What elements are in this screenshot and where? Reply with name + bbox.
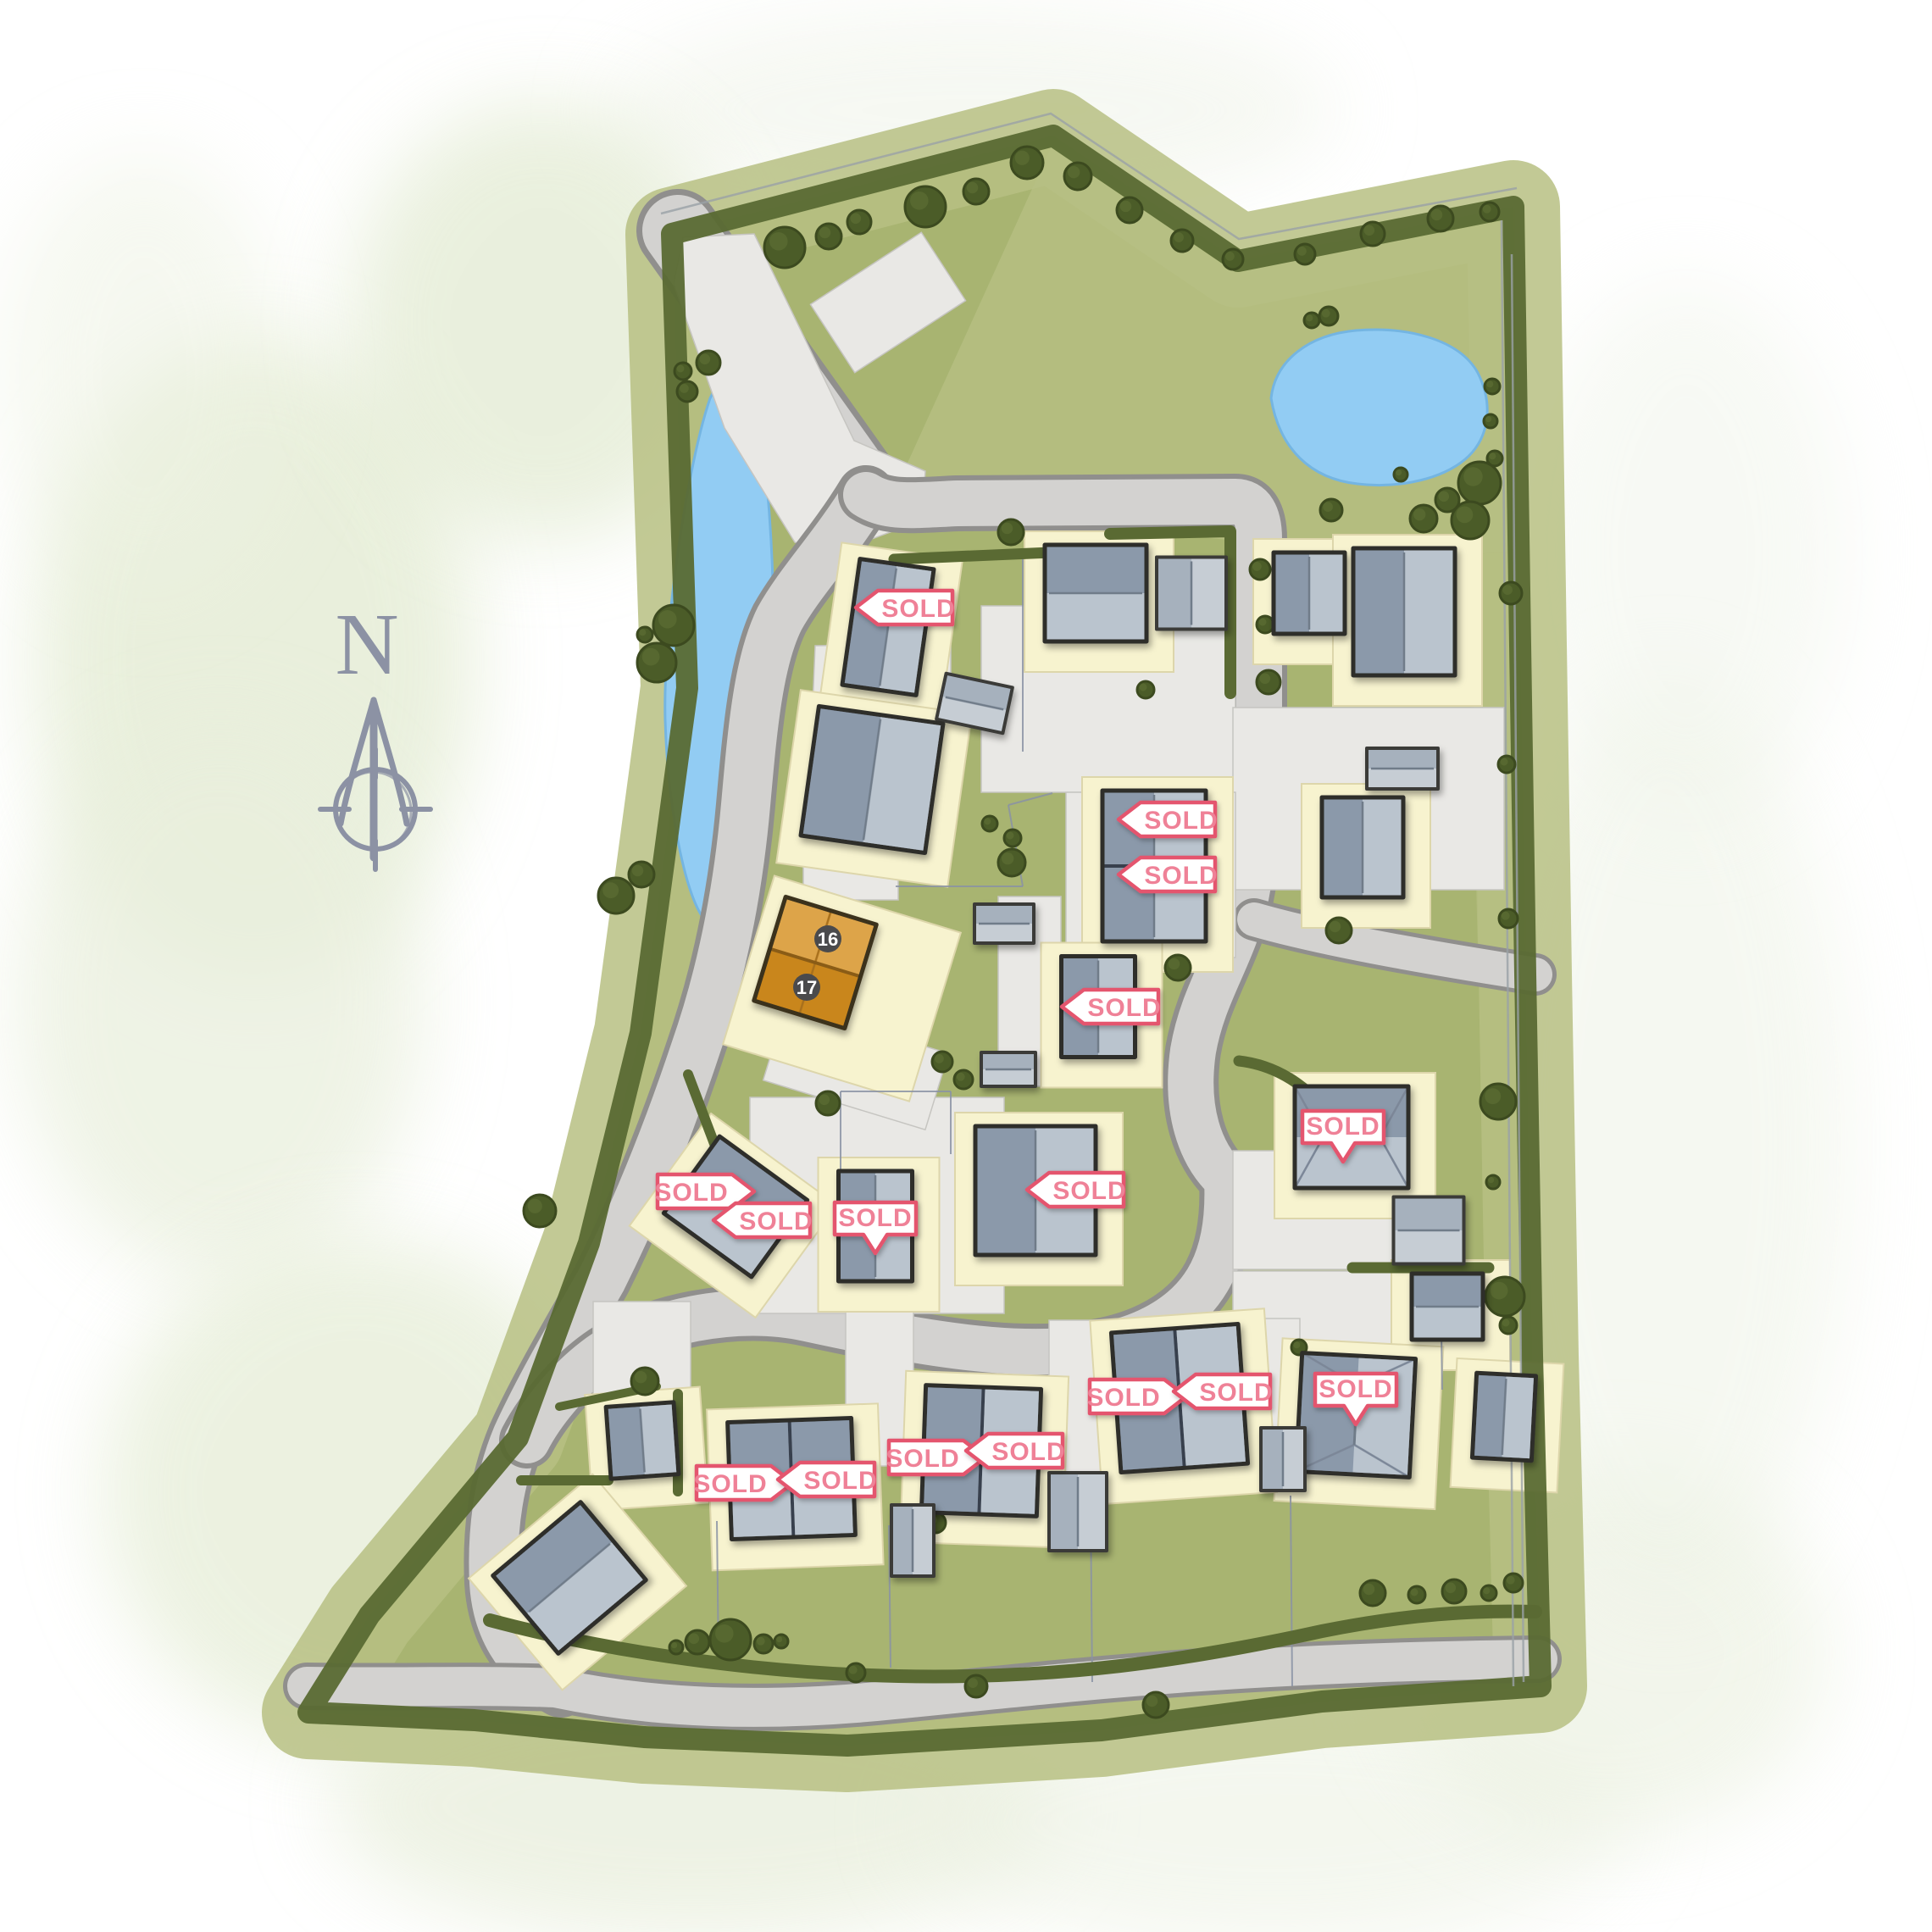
compass-north-label: N xyxy=(335,596,398,693)
tree-icon xyxy=(1485,1277,1524,1316)
tree-icon xyxy=(1499,909,1518,928)
tree-icon xyxy=(629,862,654,887)
svg-text:SOLD: SOLD xyxy=(881,595,955,623)
tree-icon xyxy=(1004,830,1021,847)
tree-icon xyxy=(1485,379,1500,394)
plot-number-badge[interactable]: 17 xyxy=(793,974,820,1001)
tree-icon xyxy=(1117,197,1142,223)
house-roof[interactable] xyxy=(1472,1373,1535,1461)
sold-badge[interactable]: SOLD xyxy=(1119,802,1219,836)
tree-icon xyxy=(905,186,946,227)
tree-icon xyxy=(697,351,720,375)
tree-icon xyxy=(1257,670,1280,694)
svg-text:SOLD: SOLD xyxy=(739,1207,813,1235)
house-roof[interactable] xyxy=(842,559,934,696)
sold-badge[interactable]: SOLD xyxy=(713,1203,813,1237)
tree-icon xyxy=(1171,230,1193,252)
tree-icon xyxy=(1480,1084,1516,1119)
house-roof[interactable] xyxy=(801,706,943,852)
tree-icon xyxy=(998,519,1024,545)
pond-north-east xyxy=(1271,330,1487,485)
svg-text:SOLD: SOLD xyxy=(803,1467,877,1495)
tree-icon xyxy=(637,627,652,642)
tree-icon xyxy=(1458,462,1501,504)
svg-text:SOLD: SOLD xyxy=(991,1438,1065,1466)
sold-badge[interactable]: SOLD xyxy=(1027,1173,1127,1207)
tree-icon xyxy=(1428,206,1453,231)
svg-text:SOLD: SOLD xyxy=(1319,1375,1392,1403)
tree-icon xyxy=(1486,1175,1500,1189)
tree-icon xyxy=(1223,249,1243,269)
sold-badge[interactable]: SOLD xyxy=(1062,990,1162,1024)
garage-roof[interactable] xyxy=(1261,1428,1305,1491)
svg-text:SOLD: SOLD xyxy=(1144,807,1218,835)
tree-icon xyxy=(631,1368,658,1395)
tree-icon xyxy=(1500,582,1522,604)
garage-roof[interactable] xyxy=(1394,1197,1464,1264)
tree-icon xyxy=(1257,616,1274,633)
garage-roof[interactable] xyxy=(1157,558,1226,630)
house-roof[interactable] xyxy=(1045,545,1146,641)
tree-icon xyxy=(963,179,989,204)
tree-icon xyxy=(1480,203,1499,221)
tree-icon xyxy=(1504,1574,1523,1592)
tree-icon xyxy=(1064,163,1091,190)
tree-icon xyxy=(954,1070,973,1089)
tree-icon xyxy=(1410,505,1437,532)
svg-text:SOLD: SOLD xyxy=(838,1204,912,1232)
sold-badge[interactable]: SOLD xyxy=(856,591,956,625)
house-roof[interactable] xyxy=(1412,1274,1483,1340)
garage-roof[interactable] xyxy=(891,1505,934,1576)
site-plan-map: 1617SOLDSOLDSOLDSOLDSOLDSOLDSOLDSOLDSOLD… xyxy=(0,0,1932,1932)
sold-badge[interactable]: SOLD xyxy=(1174,1374,1274,1408)
house-roof[interactable] xyxy=(1353,548,1455,675)
tree-icon xyxy=(816,224,841,249)
tree-icon xyxy=(982,816,997,831)
tree-icon xyxy=(1319,307,1338,325)
tree-icon xyxy=(1165,955,1191,980)
svg-text:SOLD: SOLD xyxy=(1306,1113,1380,1141)
tree-icon xyxy=(1143,1692,1169,1718)
tree-icon xyxy=(1481,1585,1496,1601)
tree-icon xyxy=(1295,244,1315,264)
plot-number-badge[interactable]: 16 xyxy=(814,925,841,952)
tree-icon xyxy=(932,1052,952,1072)
sold-badge[interactable]: SOLD xyxy=(778,1463,878,1496)
tree-icon xyxy=(965,1675,987,1697)
tree-icon xyxy=(1250,559,1270,580)
tree-icon xyxy=(754,1635,773,1653)
svg-text:17: 17 xyxy=(797,977,817,998)
tree-icon xyxy=(998,849,1025,876)
svg-text:SOLD: SOLD xyxy=(1199,1379,1273,1407)
svg-text:SOLD: SOLD xyxy=(693,1470,767,1498)
tree-icon xyxy=(1304,313,1319,328)
garage-roof[interactable] xyxy=(981,1052,1035,1086)
svg-text:SOLD: SOLD xyxy=(885,1445,959,1473)
tree-icon xyxy=(710,1619,751,1660)
svg-text:SOLD: SOLD xyxy=(1144,862,1218,890)
svg-text:SOLD: SOLD xyxy=(1086,1384,1160,1412)
tree-icon xyxy=(677,381,697,402)
tree-icon xyxy=(1435,488,1459,512)
garage-roof[interactable] xyxy=(974,904,1034,943)
tree-icon xyxy=(1360,1580,1385,1606)
garage-roof[interactable] xyxy=(1049,1473,1107,1551)
tree-icon xyxy=(1498,756,1515,773)
tree-icon xyxy=(764,227,805,268)
tree-icon xyxy=(669,1641,683,1654)
house-roof[interactable] xyxy=(1322,797,1403,897)
svg-text:16: 16 xyxy=(818,929,838,950)
sold-badge[interactable]: SOLD xyxy=(693,1466,793,1500)
tree-icon xyxy=(1326,918,1352,943)
tree-icon xyxy=(1394,468,1407,481)
tree-icon xyxy=(816,1091,840,1115)
tree-icon xyxy=(686,1630,709,1654)
tree-icon xyxy=(1442,1579,1466,1603)
tree-icon xyxy=(774,1635,788,1648)
house-roof[interactable] xyxy=(1274,552,1345,634)
tree-icon xyxy=(1320,499,1342,521)
tree-icon xyxy=(524,1195,556,1227)
tree-icon xyxy=(675,363,691,380)
tree-icon xyxy=(1408,1586,1425,1603)
tree-icon xyxy=(1361,222,1385,246)
tree-icon xyxy=(847,1663,865,1682)
tree-icon xyxy=(847,210,871,234)
tree-icon xyxy=(1484,414,1497,428)
sold-badge[interactable]: SOLD xyxy=(1119,858,1219,891)
tree-icon xyxy=(598,878,634,913)
svg-text:SOLD: SOLD xyxy=(1087,994,1161,1022)
tree-icon xyxy=(637,643,676,682)
tree-icon xyxy=(1011,147,1043,179)
sold-badge[interactable]: SOLD xyxy=(966,1434,1066,1468)
sold-badge[interactable]: SOLD xyxy=(1086,1380,1186,1413)
tree-icon xyxy=(653,605,694,646)
garage-roof[interactable] xyxy=(1367,748,1438,789)
tree-icon xyxy=(1500,1317,1517,1334)
tree-icon xyxy=(1137,681,1154,698)
house-roof[interactable] xyxy=(606,1402,679,1479)
svg-text:SOLD: SOLD xyxy=(654,1179,728,1207)
svg-text:SOLD: SOLD xyxy=(1052,1177,1126,1205)
